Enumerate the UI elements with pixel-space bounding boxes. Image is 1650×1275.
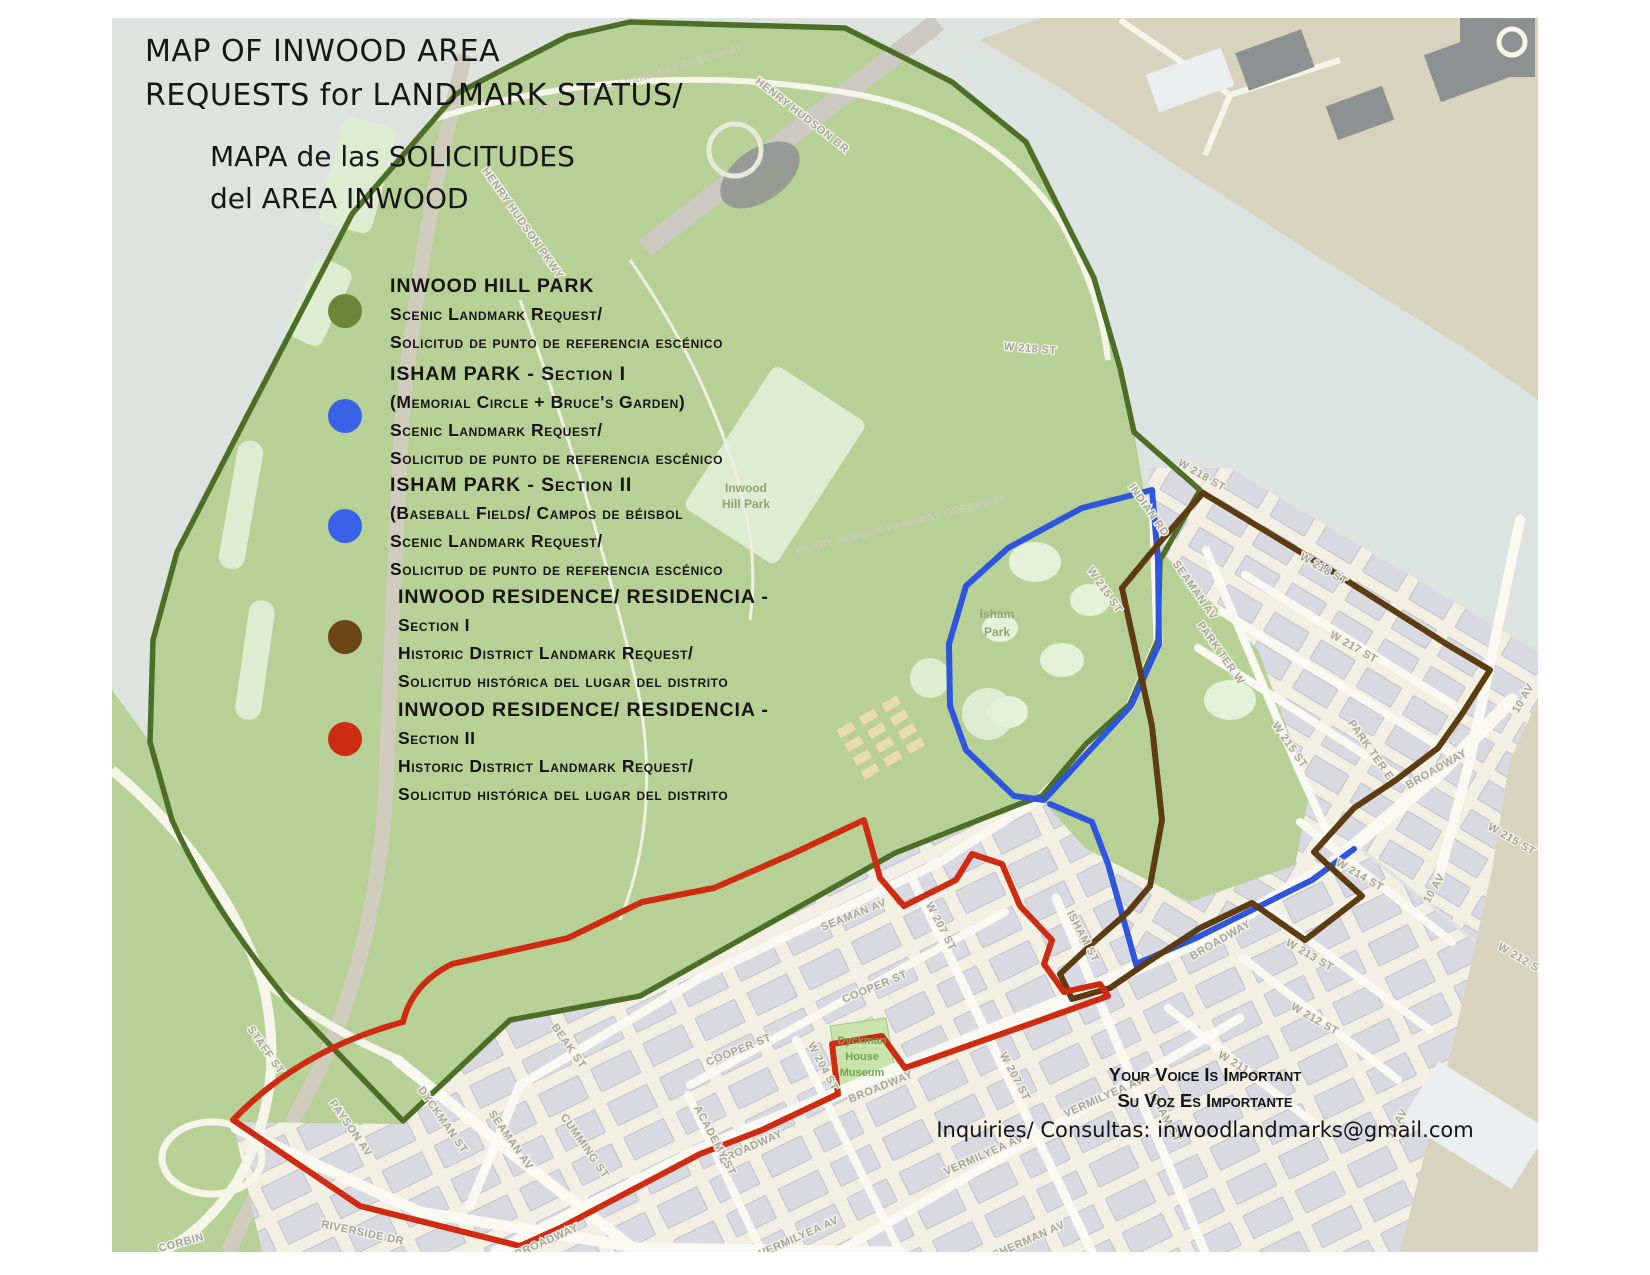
inwood-landmark-map-page: HENRY HUDSON PARKWAY GREENWAY HENRY HUDS… [0, 0, 1650, 1275]
legend-item-residence-section2: INWOOD RESIDENCE/ RESIDENCIA - Section I… [398, 696, 978, 808]
legend-dot-residence-section1 [328, 620, 362, 654]
title-line1: MAP OF INWOOD AREA [145, 34, 500, 69]
legend-item-title: INWOOD RESIDENCE/ RESIDENCIA - [398, 583, 978, 611]
map-title-english: MAP OF INWOOD AREA REQUESTS for LANDMARK… [145, 30, 683, 118]
legend-item-isham-section1: ISHAM PARK - Section I (Memorial Circle … [390, 360, 970, 472]
title-line4: del AREA INWOOD [210, 182, 469, 215]
svg-text:House: House [845, 1051, 879, 1063]
legend-item-line: Historic District Landmark Request/ [398, 752, 978, 780]
legend-item-line: Historic District Landmark Request/ [398, 639, 978, 667]
legend-item-line: Solicitud de punto de referencia escénic… [390, 328, 970, 356]
legend-item-line: Solicitud de punto de referencia escénic… [390, 444, 970, 472]
legend-item-title: INWOOD HILL PARK [390, 272, 970, 300]
map-canvas: HENRY HUDSON PARKWAY GREENWAY HENRY HUDS… [112, 18, 1538, 1252]
svg-text:Dyckman: Dyckman [838, 1035, 887, 1047]
legend-dot-residence-section2 [328, 722, 362, 756]
footer-line1: Your Voice Is Important [935, 1062, 1475, 1088]
legend-item-line: Solicitud de punto de referencia escénic… [390, 555, 970, 583]
legend-dot-isham-section1 [328, 399, 362, 433]
legend-item-residence-section1: INWOOD RESIDENCE/ RESIDENCIA - Section I… [398, 583, 978, 695]
legend-item-line: Scenic Landmark Request/ [390, 527, 970, 555]
legend-item-line: Solicitud histórica del lugar del distri… [398, 780, 978, 808]
footer-line2: Su Voz Es Importante [935, 1088, 1475, 1114]
footer-note: Your Voice Is Important Su Voz Es Import… [935, 1062, 1475, 1146]
legend-item-isham-section2: ISHAM PARK - Section II (Baseball Fields… [390, 471, 970, 583]
legend-item-line: (Memorial Circle + Bruce's Garden) [390, 388, 970, 416]
title-line3: MAPA de las SOLICITUDES [210, 140, 575, 173]
legend-item-line: Section II [398, 724, 978, 752]
legend-item-inwood-hill-park: INWOOD HILL PARK Scenic Landmark Request… [390, 272, 970, 356]
legend-item-line: Scenic Landmark Request/ [390, 300, 970, 328]
legend-item-line: Solicitud histórica del lugar del distri… [398, 667, 978, 695]
svg-text:Park: Park [984, 625, 1010, 639]
svg-text:Isham: Isham [980, 607, 1015, 621]
legend-item-line: Scenic Landmark Request/ [390, 416, 970, 444]
footer-contact-email: Inquiries/ Consultas: inwoodlandmarks@gm… [935, 1114, 1475, 1146]
legend-dot-isham-section2 [328, 509, 362, 543]
legend-item-title: INWOOD RESIDENCE/ RESIDENCIA - [398, 696, 978, 724]
title-line2: REQUESTS for LANDMARK STATUS/ [145, 78, 683, 113]
map-title-spanish: MAPA de las SOLICITUDES del AREA INWOOD [210, 136, 575, 220]
legend-item-title: ISHAM PARK - Section II [390, 471, 970, 499]
legend-item-title: ISHAM PARK - Section I [390, 360, 970, 388]
legend-item-line: Section I [398, 611, 978, 639]
legend-item-line: (Baseball Fields/ Campos de béisbol [390, 499, 970, 527]
legend-dot-inwood-hill-park [328, 294, 362, 328]
svg-text:Museum: Museum [840, 1067, 885, 1079]
